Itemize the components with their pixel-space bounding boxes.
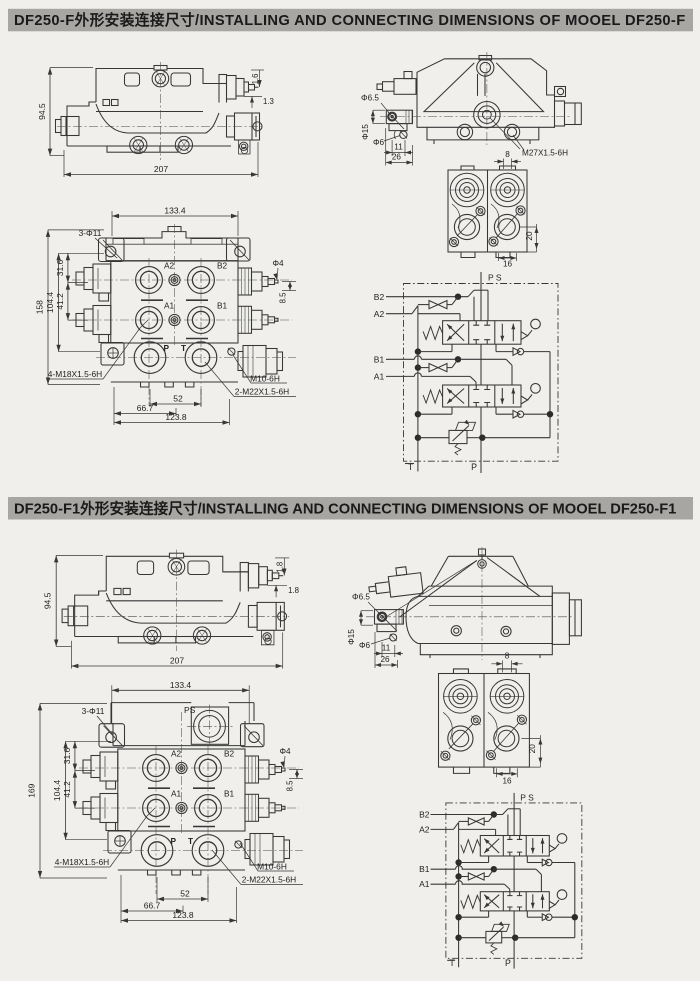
svg-text:16: 16 [503,260,513,269]
svg-text:20: 20 [525,231,534,241]
svg-text:Φ4: Φ4 [272,259,284,268]
svg-text:P S: P S [488,273,502,283]
svg-text:169: 169 [27,783,37,797]
svg-text:123.8: 123.8 [165,412,187,422]
svg-text:8.5: 8.5 [286,780,295,792]
svg-text:T: T [449,958,455,968]
svg-text:11: 11 [382,644,391,653]
svg-text:26: 26 [380,655,390,664]
svg-text:A1: A1 [374,372,385,382]
svg-text:DF250-F1外形安装连接尺寸/INSTALLING AN: DF250-F1外形安装连接尺寸/INSTALLING AND CONNECTI… [14,499,676,517]
svg-text:PS: PS [184,705,196,715]
svg-text:B1: B1 [374,355,385,365]
svg-text:11: 11 [394,143,403,152]
svg-text:94.5: 94.5 [43,592,53,609]
svg-text:Φ6: Φ6 [373,138,385,147]
svg-text:133.4: 133.4 [170,680,192,690]
svg-text:Φ6.5: Φ6.5 [352,593,370,602]
svg-text:31.6: 31.6 [55,259,65,276]
svg-text:B1: B1 [217,301,228,311]
svg-text:52: 52 [180,889,190,899]
svg-text:M27X1.5-6H: M27X1.5-6H [522,149,568,158]
svg-text:158: 158 [35,300,45,314]
svg-text:66.7: 66.7 [137,403,154,413]
svg-text:P: P [171,836,177,846]
svg-text:4-M18X1.5-6H: 4-M18X1.5-6H [55,857,109,867]
svg-text:A1: A1 [164,301,175,311]
svg-text:P: P [505,958,511,968]
svg-text:2-M22X1.5-6H: 2-M22X1.5-6H [242,875,296,885]
svg-text:123.8: 123.8 [172,910,194,920]
svg-text:B2: B2 [374,292,385,302]
svg-text:Φ15: Φ15 [347,629,356,645]
svg-text:31.6: 31.6 [62,747,72,764]
svg-text:66.7: 66.7 [144,901,161,911]
svg-text:P S: P S [520,792,534,802]
svg-text:20: 20 [528,744,537,754]
svg-text:8: 8 [505,150,510,159]
svg-text:207: 207 [170,656,184,666]
svg-text:104.4: 104.4 [45,292,55,314]
svg-text:41.2: 41.2 [55,293,65,310]
svg-text:A1: A1 [419,879,430,889]
svg-text:A1: A1 [171,789,182,799]
svg-text:B1: B1 [224,789,235,799]
svg-text:A2: A2 [164,261,175,271]
svg-text:1.8: 1.8 [288,586,299,595]
svg-text:B2: B2 [419,809,430,819]
svg-text:26: 26 [392,153,402,162]
svg-text:P: P [164,343,170,353]
svg-text:B2: B2 [224,749,235,759]
svg-text:Φ15: Φ15 [361,124,370,140]
svg-text:8: 8 [505,652,510,661]
svg-text:1.3: 1.3 [263,97,274,106]
svg-text:Φ4: Φ4 [279,747,291,756]
svg-text:DF250-F外形安装连接尺寸/INSTALLING AND: DF250-F外形安装连接尺寸/INSTALLING AND CONNECTIN… [14,11,686,29]
svg-text:3-Φ11: 3-Φ11 [82,706,105,716]
svg-text:3-Φ11: 3-Φ11 [79,228,102,238]
svg-text:B2: B2 [217,261,228,271]
svg-text:52: 52 [173,394,183,404]
svg-text:A2: A2 [419,824,430,834]
svg-text:133.4: 133.4 [164,206,186,216]
svg-text:T: T [181,343,186,353]
svg-text:8.5: 8.5 [279,292,288,304]
svg-text:104.4: 104.4 [52,780,62,802]
svg-text:207: 207 [154,164,168,174]
svg-text:M10-6H: M10-6H [257,862,287,872]
svg-text:2-M22X1.5-6H: 2-M22X1.5-6H [235,387,289,397]
svg-text:Φ6.5: Φ6.5 [361,94,379,103]
svg-text:T: T [188,836,193,846]
svg-text:4-M18X1.5-6H: 4-M18X1.5-6H [48,369,102,379]
svg-text:B1: B1 [419,864,430,874]
svg-text:Φ6: Φ6 [359,641,371,650]
svg-text:16: 16 [502,777,512,786]
svg-text:A2: A2 [374,309,385,319]
svg-text:94.5: 94.5 [37,103,47,120]
svg-text:M10-6H: M10-6H [250,374,280,384]
svg-text:P: P [471,462,477,472]
svg-text:41.2: 41.2 [62,781,72,798]
svg-text:A2: A2 [171,749,182,759]
